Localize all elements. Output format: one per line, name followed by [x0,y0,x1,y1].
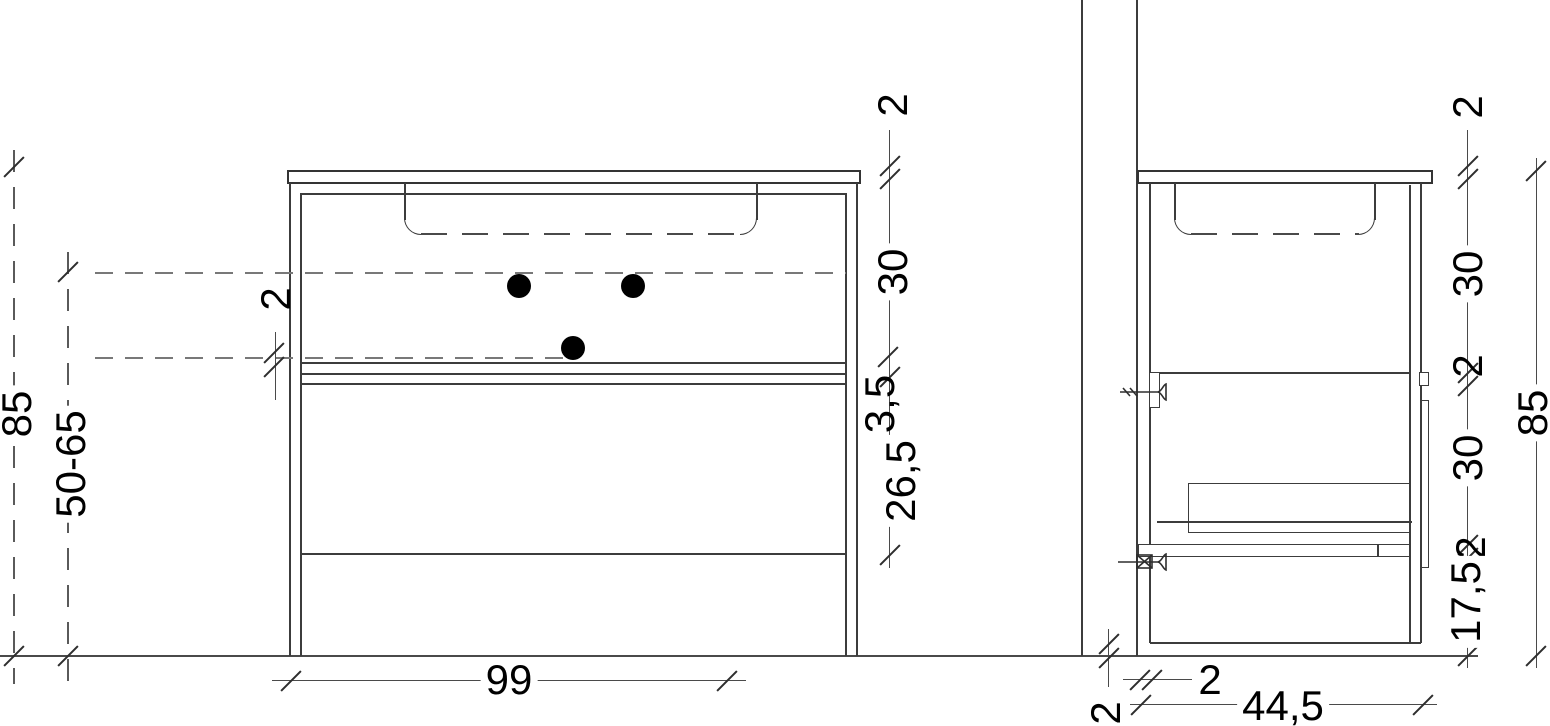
front-sink-left-edge [404,183,406,220]
front-sink-hidden-bottom-line [421,233,741,235]
front-bottom-panel-line [301,553,846,555]
dim-label-side-divider: 2 [1447,349,1489,382]
drawer-bottom-rail [1138,544,1410,557]
side-sink-back-edge [1174,183,1176,220]
front-sink-right-corner [740,218,757,235]
side-front-panel-inner [1409,185,1411,643]
floor-line [0,655,1478,657]
basin-rim-construction-line [95,272,846,274]
dim-label-front-mount-height: 50-65 [50,405,92,522]
front-inner-top-line [301,193,846,195]
dim-label-front-top-thickness: 2 [872,88,914,121]
dim-label-depth: 44,5 [1237,685,1329,726]
faucet-hole-dot [507,274,531,298]
dim-label-front-total-height: 85 [0,386,38,443]
dim-label-floor-clearance: 2 [1085,696,1127,726]
side-divider-line [1150,372,1410,374]
front-countertop [287,170,861,184]
side-bottom-panel-line [1150,642,1421,644]
side-sink-front-corner [1358,218,1375,235]
side-back-panel [1149,183,1151,643]
dim-label-front-width: 99 [481,659,538,701]
dim-label-side-top-thickness: 2 [1447,90,1489,123]
screw-icon [1118,381,1172,403]
side-sink-front-edge [1374,183,1376,220]
dim-line-back-panel [1123,679,1192,680]
dim-label-back-panel: 2 [1193,659,1226,701]
dim-tick [877,346,898,367]
side-sink-back-corner [1174,218,1191,235]
front-divider-top-line [301,373,846,375]
dim-label-front-lower-section: 26,5 [880,435,922,527]
wall-outer-line [1081,0,1083,656]
dim-label-front-upper-section: 30 [872,244,914,301]
faucet-hole-dot [561,336,585,360]
technical-drawing-canvas: 85 50-65 2 2 30 3,5 26,5 99 2 30 2 30 2 … [0,0,1550,726]
front-compartment-bottom-line [301,362,846,364]
drawer-front-top-edge [1419,372,1429,386]
front-sink-left-corner [404,218,421,235]
screw-icon [1116,551,1172,573]
front-divider-bottom-line [301,383,846,385]
front-sink-right-edge [756,183,758,220]
drawer-runner-rail [1157,521,1412,523]
faucet-hole-dot [621,274,645,298]
drawer-side-panel [1188,483,1410,533]
dim-label-front-divider-gap: 3,5 [859,370,901,438]
dim-label-side-leg-zone: 17,5 [1445,556,1487,648]
front-left-panel-inner [300,193,302,656]
dim-label-basin-bottom: 2 [255,282,297,315]
drawer-bottom-rail-end [1377,544,1379,557]
side-sink-hidden-bottom-line [1191,233,1359,235]
dim-label-side-upper-section: 30 [1447,246,1489,303]
front-right-panel-inner [845,193,847,656]
drawer-front-edge-strip [1421,400,1429,568]
side-countertop [1137,170,1433,184]
dim-label-side-total-height: 85 [1512,385,1550,442]
dim-label-side-lower-section: 30 [1447,430,1489,487]
front-left-panel-outer [289,183,291,656]
basin-bottom-construction-line [95,357,573,359]
